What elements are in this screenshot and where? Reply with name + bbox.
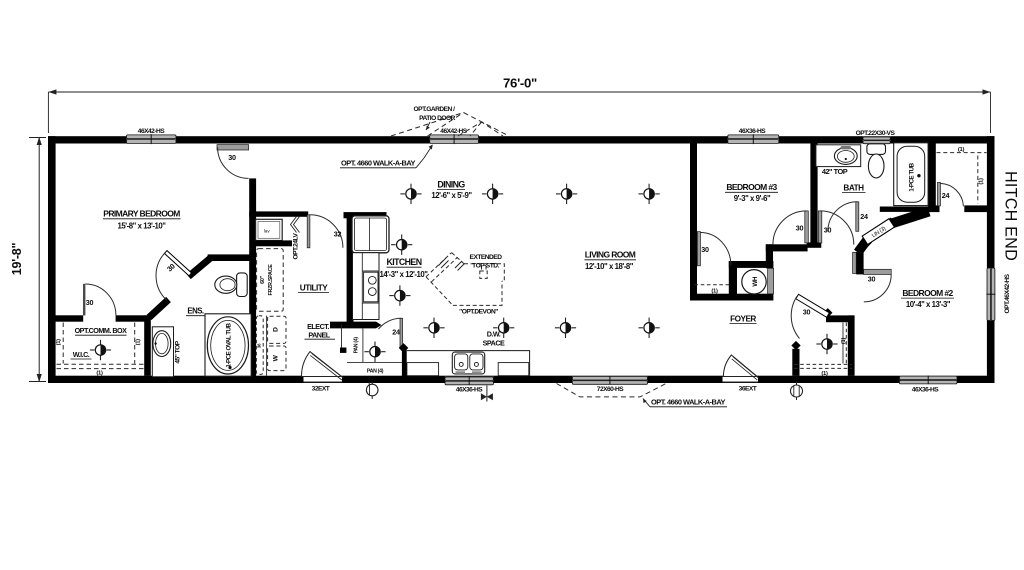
svg-text:PRIMARY BEDROOM: PRIMARY BEDROOM bbox=[103, 209, 180, 219]
svg-text:PANEL: PANEL bbox=[308, 330, 330, 339]
svg-text:"OPT.DEVON": "OPT.DEVON" bbox=[459, 309, 498, 316]
svg-text:W.I.C.: W.I.C. bbox=[73, 350, 90, 359]
svg-text:46X36-HS: 46X36-HS bbox=[912, 387, 940, 394]
svg-text:PAN (4): PAN (4) bbox=[353, 337, 359, 354]
svg-text:19'-8": 19'-8" bbox=[10, 242, 24, 275]
svg-text:32: 32 bbox=[334, 230, 342, 239]
svg-text:(1): (1) bbox=[958, 147, 965, 153]
svg-text:SPACE: SPACE bbox=[483, 339, 505, 348]
svg-text:OPT. 4660 WALK-A-BAY: OPT. 4660 WALK-A-BAY bbox=[651, 398, 725, 407]
svg-text:60": 60" bbox=[260, 275, 266, 283]
svg-text:46X36-HS: 46X36-HS bbox=[739, 128, 767, 135]
svg-text:36: 36 bbox=[256, 343, 261, 348]
svg-text:24: 24 bbox=[942, 191, 950, 200]
svg-text:24: 24 bbox=[392, 328, 400, 337]
svg-text:30: 30 bbox=[701, 245, 709, 254]
svg-text:36EXT: 36EXT bbox=[739, 386, 757, 393]
svg-text:24: 24 bbox=[860, 212, 868, 221]
svg-text:46X36-HS: 46X36-HS bbox=[456, 387, 484, 394]
svg-text:46X42-HS: 46X42-HS bbox=[440, 128, 468, 135]
svg-text:30: 30 bbox=[868, 275, 876, 284]
svg-text:(1): (1) bbox=[96, 371, 103, 377]
svg-text:12'-6" x 5'-9": 12'-6" x 5'-9" bbox=[431, 191, 472, 200]
svg-text:lav: lav bbox=[264, 229, 271, 234]
svg-text:KITCHEN: KITCHEN bbox=[387, 257, 422, 267]
svg-text:10'-4" x 13'-3": 10'-4" x 13'-3" bbox=[906, 300, 951, 309]
svg-text:46X42-HS: 46X42-HS bbox=[138, 128, 166, 135]
svg-text:OPT.24LV: OPT.24LV bbox=[293, 232, 300, 259]
svg-text:30: 30 bbox=[803, 308, 811, 317]
svg-text:WH: WH bbox=[752, 276, 759, 287]
svg-text:72X60-HS: 72X60-HS bbox=[597, 386, 625, 393]
svg-text:30: 30 bbox=[228, 153, 236, 162]
svg-text:15'-8" x 13'-10": 15'-8" x 13'-10" bbox=[117, 222, 166, 231]
svg-text:BEDROOM #3: BEDROOM #3 bbox=[726, 182, 777, 192]
svg-text:(1): (1) bbox=[56, 339, 62, 346]
svg-text:BATH: BATH bbox=[843, 183, 864, 192]
svg-text:FOYER: FOYER bbox=[730, 314, 756, 323]
svg-text:PATIO DOOR: PATIO DOOR bbox=[419, 115, 456, 122]
svg-text:OPT. 4660 WALK-A-BAY: OPT. 4660 WALK-A-BAY bbox=[341, 159, 415, 168]
svg-text:TOP-STD.: TOP-STD. bbox=[472, 263, 499, 270]
svg-text:LIVING ROOM: LIVING ROOM bbox=[585, 250, 636, 260]
svg-text:ENS.: ENS. bbox=[187, 307, 204, 316]
svg-text:DINING: DINING bbox=[437, 179, 465, 189]
svg-text:OPT.22X30-VS: OPT.22X30-VS bbox=[856, 130, 896, 137]
svg-text:(1): (1) bbox=[978, 178, 984, 185]
svg-text:OPT.GARDEN /: OPT.GARDEN / bbox=[414, 106, 456, 113]
svg-text:42" TOP: 42" TOP bbox=[822, 167, 848, 176]
svg-text:9'-3" x 9'-6": 9'-3" x 9'-6" bbox=[734, 194, 771, 203]
svg-text:D.W.: D.W. bbox=[487, 330, 501, 339]
svg-text:(1): (1) bbox=[136, 339, 142, 346]
svg-text:12'-10" x 18'-8": 12'-10" x 18'-8" bbox=[585, 262, 634, 271]
svg-text:76'-0": 76'-0" bbox=[503, 76, 537, 91]
svg-text:BEDROOM #2: BEDROOM #2 bbox=[902, 288, 953, 298]
svg-text:UTILITY: UTILITY bbox=[300, 283, 328, 292]
svg-text:(1): (1) bbox=[821, 371, 828, 377]
svg-text:PAN (4): PAN (4) bbox=[367, 369, 384, 375]
svg-text:OPT.46X42-HS: OPT.46X42-HS bbox=[1004, 273, 1011, 313]
svg-text:1-PCE TUB: 1-PCE TUB bbox=[909, 162, 916, 191]
svg-text:FRZR.SPACE: FRZR.SPACE bbox=[268, 264, 274, 296]
svg-text:D: D bbox=[273, 327, 280, 332]
svg-text:14'-3" x 12'-10": 14'-3" x 12'-10" bbox=[379, 270, 428, 279]
svg-text:OPT.COMM. BOX: OPT.COMM. BOX bbox=[75, 326, 128, 335]
svg-text:EXTENDED: EXTENDED bbox=[470, 254, 503, 261]
svg-text:30: 30 bbox=[796, 224, 804, 233]
svg-text:HITCH END: HITCH END bbox=[1002, 171, 1020, 261]
svg-text:45" TOP: 45" TOP bbox=[175, 340, 182, 363]
svg-text:(1): (1) bbox=[841, 338, 847, 345]
svg-text:30: 30 bbox=[86, 298, 94, 307]
svg-text:32EXT: 32EXT bbox=[312, 386, 330, 393]
svg-text:1-PCE OVAL TUB: 1-PCE OVAL TUB bbox=[226, 322, 233, 367]
svg-text:(1): (1) bbox=[711, 289, 718, 295]
